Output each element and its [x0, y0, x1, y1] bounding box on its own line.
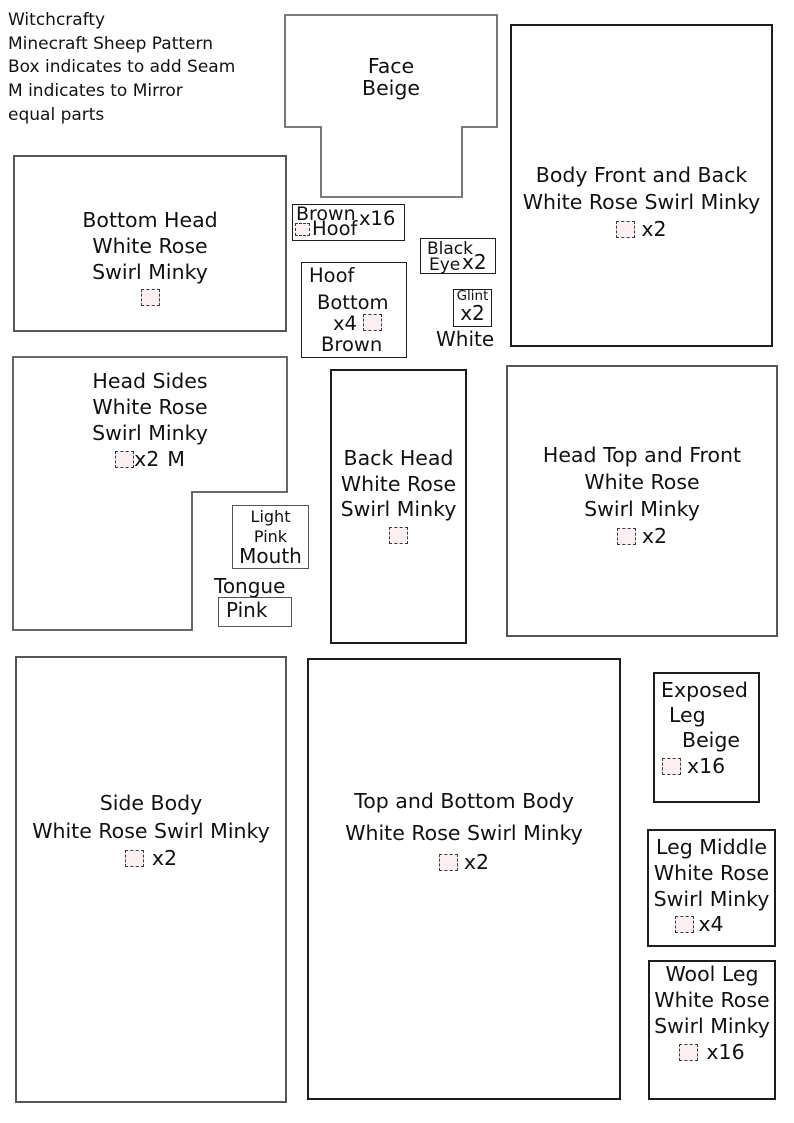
head-top-front-fabric1: White Rose [508, 469, 776, 496]
exposed-leg-seamrow: x16 [655, 753, 758, 779]
leg-middle-count: x4 [698, 911, 723, 937]
side-body-count: x2 [152, 845, 177, 871]
leg-middle-fabric2: Swirl Minky [649, 886, 774, 912]
mouth-name: Mouth [233, 546, 308, 566]
hoof-bottom-count: x4 [333, 312, 357, 335]
top-bottom-body-fabric: White Rose Swirl Minky [309, 817, 619, 849]
back-head-name: Back Head [332, 446, 465, 472]
top-bottom-body-seamrow: x2 [309, 849, 619, 875]
face-piece-label: Face Beige [291, 56, 491, 99]
note-equal-parts: equal parts [8, 104, 235, 128]
leg-middle-fabric1: White Rose [649, 860, 774, 886]
wool-leg-name: Wool Leg [650, 962, 774, 987]
seam-allowance-box [616, 221, 635, 238]
top-bottom-body-piece: Top and Bottom Body White Rose Swirl Min… [307, 658, 621, 1100]
back-head-fabric1: White Rose [332, 472, 465, 498]
seam-allowance-box [679, 1044, 698, 1061]
back-head-seamrow [332, 523, 465, 548]
brown-hoof-name: Hoof [312, 217, 357, 240]
seam-allowance-box [439, 854, 458, 871]
bottom-head-fabric2: Swirl Minky [15, 259, 285, 285]
face-piece-outline [284, 14, 498, 198]
exposed-leg-piece: Exposed Leg Beige x16 [653, 672, 760, 803]
head-sides-count: x2 [134, 446, 159, 472]
pattern-subtitle: Minecraft Sheep Pattern [8, 33, 235, 57]
note-seam: Box indicates to add Seam [8, 56, 235, 80]
wool-leg-fabric2: Swirl Minky [650, 1013, 774, 1039]
mouth-fabric1: Light [233, 507, 308, 527]
head-sides-fabric1: White Rose [13, 394, 287, 420]
wool-leg-fabric1: White Rose [650, 987, 774, 1013]
head-sides-fabric2: Swirl Minky [13, 420, 287, 446]
pattern-notes: Witchcrafty Minecraft Sheep Pattern Box … [8, 9, 235, 128]
leg-middle-piece: Leg Middle White Rose Swirl Minky x4 [647, 829, 776, 947]
body-front-back-piece: Body Front and Back White Rose Swirl Min… [510, 24, 773, 347]
black-eye-count: x2 [462, 250, 487, 274]
head-sides-seamrow: x2 M [13, 446, 287, 472]
hoof-bottom-name2: Bottom [317, 291, 389, 314]
leg-middle-seamrow: x4 [637, 912, 762, 936]
brown-hoof-count: x16 [359, 207, 395, 230]
wool-leg-piece: Wool Leg White Rose Swirl Minky x16 [648, 960, 776, 1100]
note-mirror: M indicates to Mirror [8, 80, 235, 104]
head-sides-label: Head Sides White Rose Swirl Minky x2 M [13, 360, 287, 472]
face-fabric: Beige [291, 78, 491, 100]
body-front-back-count: x2 [641, 216, 666, 242]
side-body-name: Side Body [17, 789, 285, 817]
pattern-title: Witchcrafty [8, 9, 235, 33]
wool-leg-count: x16 [706, 1039, 744, 1065]
exposed-leg-name1: Exposed [655, 678, 758, 703]
mouth-piece: Light Pink Mouth [232, 505, 309, 569]
hoof-bottom-piece: Hoof Bottom x4 Brown [301, 262, 407, 358]
seam-allowance-box [363, 314, 382, 331]
head-top-front-name: Head Top and Front [508, 442, 776, 469]
body-front-back-name: Body Front and Back [512, 162, 771, 189]
top-bottom-body-name: Top and Bottom Body [309, 785, 619, 817]
hoof-bottom-fabric: Brown [321, 333, 382, 356]
body-front-back-fabric: White Rose Swirl Minky [512, 189, 771, 216]
seam-allowance-box [295, 223, 310, 236]
head-top-front-count: x2 [642, 523, 667, 549]
tongue-name-label: Tongue [214, 574, 285, 598]
exposed-leg-name2: Leg [655, 703, 758, 728]
glint-piece: Glint x2 [453, 289, 492, 327]
bottom-head-fabric1: White Rose [15, 233, 285, 259]
black-eye-piece: Black Eye x2 [420, 238, 496, 274]
brown-hoof-piece: Brown x16 Hoof [292, 204, 405, 241]
head-sides-name: Head Sides [13, 368, 287, 394]
seam-allowance-box [115, 451, 134, 468]
exposed-leg-count: x16 [687, 753, 725, 779]
bottom-head-name: Bottom Head [15, 207, 285, 233]
face-piece-shape [285, 15, 497, 197]
head-top-front-fabric2: Swirl Minky [508, 496, 776, 523]
black-eye-name: Eye [429, 255, 460, 275]
face-name: Face [291, 56, 491, 78]
back-head-fabric2: Swirl Minky [332, 497, 465, 523]
seam-allowance-box [617, 528, 636, 545]
exposed-leg-fabric: Beige [655, 728, 758, 753]
body-front-back-seamrow: x2 [512, 216, 771, 242]
tongue-fabric: Pink [226, 598, 267, 622]
bottom-head-piece: Bottom Head White Rose Swirl Minky [13, 155, 287, 332]
seam-allowance-box [662, 758, 681, 775]
bottom-head-seamrow [15, 285, 285, 309]
glint-count: x2 [454, 303, 491, 323]
leg-middle-name: Leg Middle [649, 834, 774, 860]
seam-allowance-box [389, 527, 408, 544]
side-body-fabric: White Rose Swirl Minky [17, 817, 285, 845]
head-top-front-seamrow: x2 [508, 523, 776, 549]
wool-leg-seamrow: x16 [650, 1039, 774, 1065]
pattern-sheet: Witchcrafty Minecraft Sheep Pattern Box … [0, 0, 794, 1123]
back-head-piece: Back Head White Rose Swirl Minky [330, 369, 467, 644]
seam-allowance-box [125, 850, 144, 867]
glint-fabric-label: White [436, 327, 494, 351]
hoof-bottom-name1: Hoof [309, 264, 354, 287]
seam-allowance-box [141, 289, 160, 306]
seam-allowance-box [675, 916, 694, 933]
side-body-seamrow: x2 [17, 845, 285, 871]
top-bottom-body-count: x2 [464, 849, 489, 875]
head-top-front-piece: Head Top and Front White Rose Swirl Mink… [506, 365, 778, 637]
head-sides-mirror-flag: M [167, 446, 185, 472]
tongue-piece: Pink [218, 597, 292, 627]
side-body-piece: Side Body White Rose Swirl Minky x2 [15, 656, 287, 1103]
